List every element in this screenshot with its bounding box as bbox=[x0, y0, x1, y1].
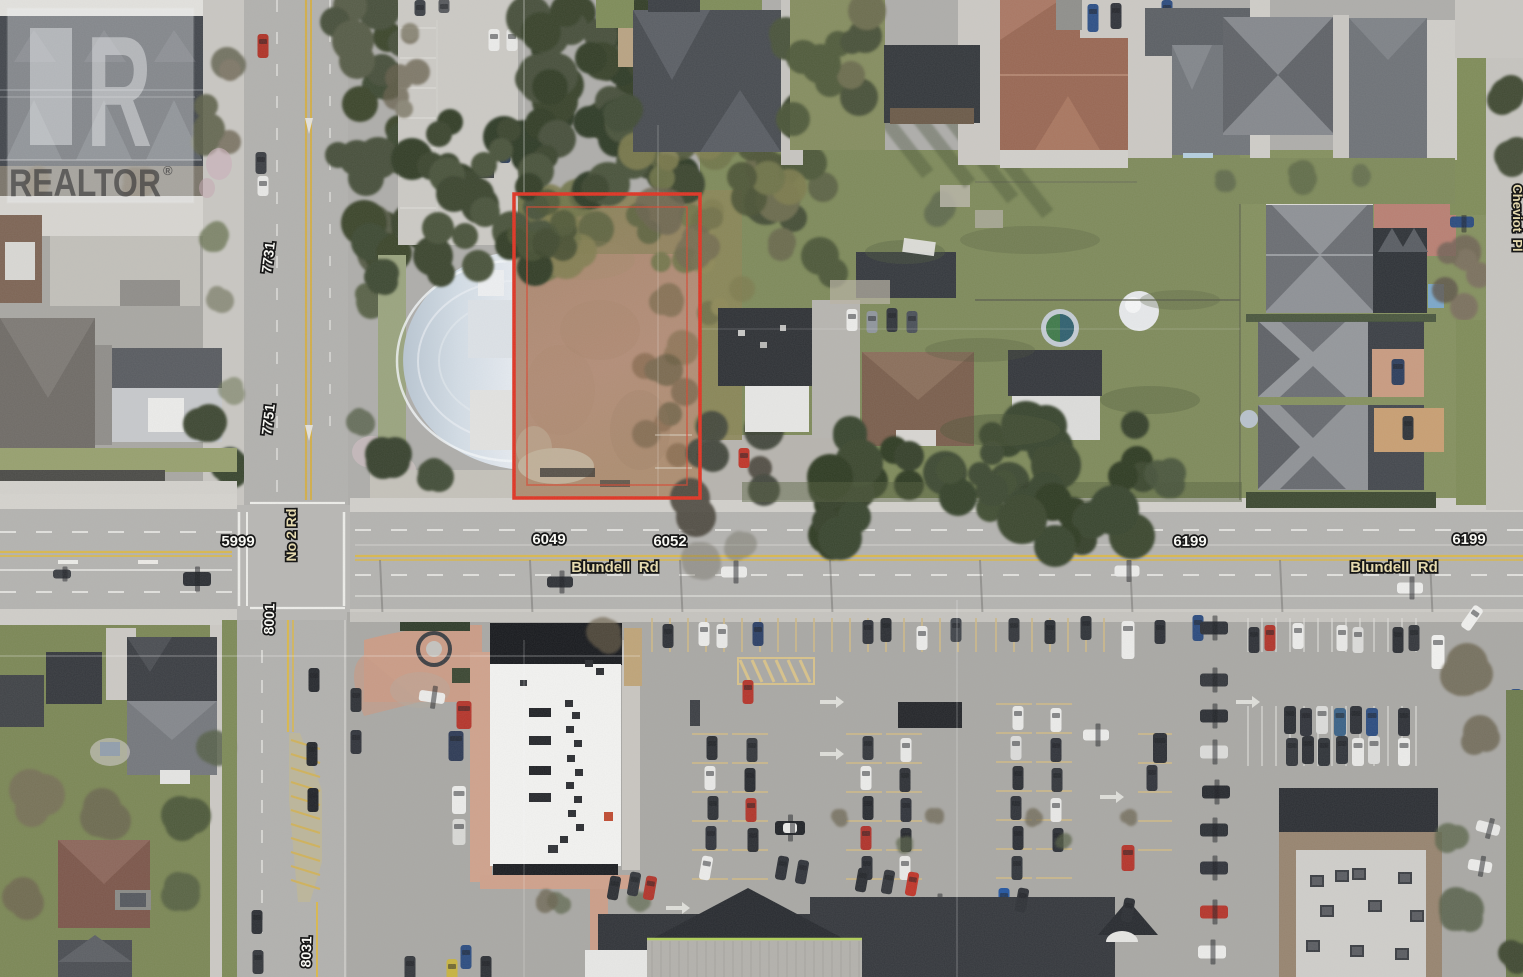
svg-text:REALTOR: REALTOR bbox=[9, 162, 161, 205]
svg-text:®: ® bbox=[163, 163, 173, 178]
svg-text:R: R bbox=[86, 4, 152, 180]
